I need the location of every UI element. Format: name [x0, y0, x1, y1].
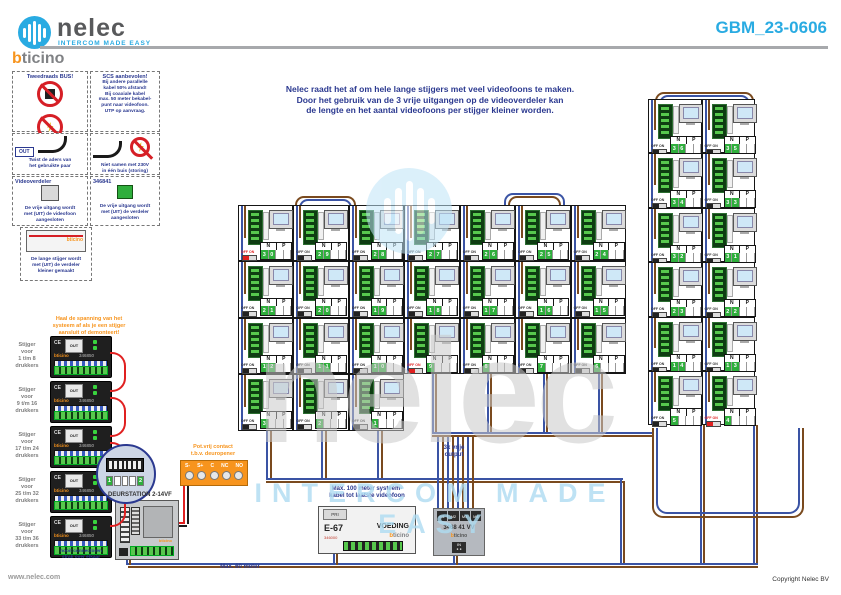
screen-stand — [686, 341, 695, 343]
screen-stand — [553, 342, 562, 344]
bus-wire-brown — [244, 375, 246, 407]
bus-wire-brown — [708, 209, 710, 239]
pri-terminal: PRI — [323, 509, 347, 520]
video-screen — [324, 323, 348, 342]
videofoon-unit-19: OFF ONNP19 — [349, 261, 404, 317]
psu-terminals — [343, 541, 403, 551]
termination-dip-switch: OFF ON — [651, 416, 669, 426]
termination-dip-switch: OFF ON — [352, 419, 370, 429]
n-value: 1 — [372, 419, 380, 428]
termination-dip-switch: OFF ON — [518, 306, 536, 316]
p-value — [747, 144, 755, 153]
address-table: NP16 — [537, 298, 569, 316]
screen-stand — [498, 229, 507, 231]
n-value: 1 — [671, 362, 679, 371]
videofoon-unit-17: OFF ONNP17 — [460, 261, 515, 317]
address-table: NP15 — [593, 298, 625, 316]
videofoon-unit-13: OFF ONNP13 — [702, 317, 756, 371]
video-screen — [324, 266, 348, 285]
video-screen — [733, 322, 757, 341]
videofoon-unit-35: OFF ONNP35 — [702, 99, 756, 153]
green-terminals — [54, 366, 108, 375]
bticino-tag: bticino — [434, 533, 484, 539]
terminal-block — [712, 158, 727, 193]
video-screen — [380, 210, 404, 229]
wire — [598, 374, 600, 434]
termination-dip-switch: OFF ON — [463, 250, 481, 260]
termination-dip-switch: OFF ON — [518, 250, 536, 260]
p-value — [747, 416, 755, 425]
address-table: NP27 — [426, 242, 458, 260]
address-table: NP31 — [724, 245, 756, 263]
address-table: NP19 — [371, 298, 403, 316]
riser-model: 346850 — [79, 533, 94, 538]
p-value — [394, 250, 402, 259]
screen-stand — [276, 342, 285, 344]
videofoon-unit-25: OFF ONNP25 — [515, 205, 570, 261]
p-value — [694, 416, 702, 425]
videofoon-unit-34: OFF ONNP34 — [648, 153, 702, 207]
screen-stand — [740, 341, 749, 343]
in-port: IN — [452, 542, 466, 553]
screen-stand — [553, 229, 562, 231]
terminal-block — [248, 379, 263, 414]
terminal-block — [525, 210, 540, 245]
wire — [266, 430, 268, 478]
bus-wire-brown — [410, 262, 412, 294]
green-connector-icon — [117, 185, 133, 199]
wire — [377, 430, 379, 478]
address-table: NP3 — [260, 411, 292, 429]
address-table: NP35 — [724, 136, 756, 154]
wire — [490, 374, 492, 434]
bus-wire-brown — [708, 263, 710, 293]
bus-wire-brown — [521, 206, 523, 238]
video-screen — [679, 267, 703, 286]
address-table: NP20 — [315, 298, 347, 316]
videofoon-unit-23: OFF ONNP23 — [648, 262, 702, 316]
address-table: NP9 — [426, 355, 458, 373]
screen-stand — [686, 177, 695, 179]
videofoon-unit-11: OFF ONNP11 — [293, 318, 348, 374]
n-value: 3 — [725, 144, 733, 153]
wire — [266, 478, 623, 480]
bus-wire-brown — [410, 206, 412, 238]
p-value — [442, 306, 450, 315]
videofoon-unit-9: OFF ONNP9 — [404, 318, 459, 374]
n-value — [679, 416, 687, 425]
n-value: 1 — [316, 363, 324, 372]
screen-stand — [498, 342, 507, 344]
distributor-icon — [41, 185, 59, 201]
p-value — [686, 416, 694, 425]
p-value — [694, 198, 702, 207]
screen-stand — [276, 285, 285, 287]
video-screen — [435, 323, 459, 342]
n-value: 6 — [546, 306, 554, 315]
n-value: 5 — [732, 144, 740, 153]
bus-wire-brown — [355, 206, 357, 238]
bticino-tag: bticino — [54, 353, 69, 358]
p-value — [686, 307, 694, 316]
terminal-block — [712, 213, 727, 248]
videofoon-unit-1: OFF ONNP1 — [349, 374, 404, 430]
wire — [381, 430, 383, 478]
terminal-block — [470, 323, 485, 358]
terminal-block — [414, 210, 429, 245]
note-box-twist: OUT Twist de aders van het gebruikte paa… — [12, 133, 88, 175]
p-value — [609, 250, 617, 259]
n-value: 4 — [725, 416, 733, 425]
address-table: NP2 — [315, 411, 347, 429]
videofoon-unit-29: OFF ONNP29 — [293, 205, 348, 261]
terminal-block — [470, 210, 485, 245]
screen-stand — [740, 177, 749, 179]
free-output-caption: 3x vrije output — [424, 445, 484, 459]
wire — [321, 430, 323, 478]
termination-dip-switch: OFF ON — [407, 306, 425, 316]
p-value — [339, 363, 347, 372]
videofoon-unit-26: OFF ONNP26 — [460, 205, 515, 261]
p-value — [276, 250, 284, 259]
bus-wire-brown — [355, 319, 357, 351]
screen-stand — [740, 123, 749, 125]
video-screen — [491, 323, 515, 342]
p-value — [387, 419, 395, 428]
address-table: NP28 — [371, 242, 403, 260]
p-value — [498, 250, 506, 259]
p-value — [609, 363, 617, 372]
termination-dip-switch: OFF ON — [241, 306, 259, 316]
header-rule — [40, 46, 828, 49]
n-value — [732, 416, 740, 425]
terminal-block — [712, 104, 727, 139]
address-table: NP8 — [482, 355, 514, 373]
p-value — [616, 250, 624, 259]
videofoon-unit-21: OFF ONNP21 — [238, 261, 293, 317]
videofoon-unit-27: OFF ONNP27 — [404, 205, 459, 261]
n-value: 3 — [725, 253, 733, 262]
p-value — [387, 363, 395, 372]
termination-dip-switch: OFF ON — [352, 363, 370, 373]
n-value: 2 — [269, 363, 277, 372]
terminal-block — [359, 379, 374, 414]
termination-dip-switch: OFF ON — [518, 363, 536, 373]
n-value: 4 — [601, 250, 609, 259]
p-value — [498, 363, 506, 372]
screen-stand — [553, 285, 562, 287]
bus-wire-brown — [299, 319, 301, 351]
videofoon-unit-2: OFF ONNP2 — [293, 374, 348, 430]
power-supply: PRI E-67 VOEDING 346000 bticino — [318, 506, 416, 554]
wire — [432, 432, 654, 434]
screen-stand — [442, 342, 451, 344]
psu-label: VOEDING — [377, 523, 409, 530]
n-value: 2 — [427, 250, 435, 259]
dip-values: 12 — [106, 476, 144, 486]
video-screen — [324, 210, 348, 229]
video-screen — [380, 379, 404, 398]
bus-wire-brown — [654, 100, 656, 130]
termination-dip-switch: OFF ON — [241, 419, 259, 429]
note-text: De lange stijger wordt met (UIT) de verd… — [23, 257, 89, 274]
terminal-block — [470, 266, 485, 301]
video-screen — [679, 376, 703, 395]
out-chip: OUT — [15, 147, 34, 157]
terminal-block — [248, 323, 263, 358]
wire — [187, 486, 189, 524]
address-table: NP21 — [260, 298, 292, 316]
n-value: 1 — [261, 363, 269, 372]
videofoon-unit-15: OFF ONNP15 — [571, 261, 626, 317]
terminal-block — [658, 104, 673, 139]
p-value — [694, 362, 702, 371]
n-value: 1 — [372, 363, 380, 372]
address-table: NP14 — [670, 354, 702, 372]
bus-wire-brown — [466, 206, 468, 238]
wire — [487, 374, 489, 434]
terminal-block — [658, 213, 673, 248]
p-value — [553, 363, 561, 372]
n-value: 3 — [732, 362, 740, 371]
wire — [543, 374, 545, 434]
video-screen — [269, 323, 293, 342]
terminal-block — [712, 322, 727, 357]
bus-wire-brown — [708, 154, 710, 184]
p-value — [387, 250, 395, 259]
bus-wire-brown — [299, 262, 301, 294]
screen-stand — [387, 342, 396, 344]
n-value: 2 — [261, 306, 269, 315]
n-value: 8 — [483, 363, 491, 372]
n-value — [546, 363, 554, 372]
address-table: NP32 — [670, 245, 702, 263]
bticino-tag: bticino — [54, 533, 69, 538]
p-value — [339, 306, 347, 315]
screen-stand — [686, 123, 695, 125]
wire — [546, 374, 548, 434]
riser-interface-device: CEOUTbticino346850 — [50, 381, 112, 423]
p-value — [442, 250, 450, 259]
n-value: 1 — [538, 306, 546, 315]
video-distributor: M1M2M3M4 3468 41 VV bticino IN — [433, 508, 485, 556]
n-value: 0 — [324, 306, 332, 315]
distributor-ports: M1M2M3M4 — [437, 511, 481, 521]
bus-wire-brown — [299, 375, 301, 407]
terminal-strip — [131, 507, 140, 535]
termination-dip-switch: OFF ON — [296, 363, 314, 373]
n-value: 9 — [427, 363, 435, 372]
bus-wire-brown — [708, 100, 710, 130]
n-value: 7 — [435, 250, 443, 259]
p-value — [694, 253, 702, 262]
p-value — [276, 419, 284, 428]
address-table: NP13 — [724, 354, 756, 372]
bus-wire-brown — [521, 262, 523, 294]
note-box-bus: Tweedraads BUS! Bij een aderpaar altijd … — [12, 71, 88, 132]
termination-dip-switch: OFF ON — [463, 306, 481, 316]
terminal-block — [581, 210, 596, 245]
videofoon-unit-20: OFF ONNP20 — [293, 261, 348, 317]
termination-dip-switch: OFF ON — [574, 363, 592, 373]
n-value: 3 — [671, 253, 679, 262]
bus-wire-brown — [244, 262, 246, 294]
contact-box-title: Pot.vrij contact t.b.v. deuropener — [168, 444, 258, 457]
p-value — [686, 198, 694, 207]
n-value: 0 — [269, 250, 277, 259]
note-text: De vrije uitgang wordt met (UIT) de vide… — [15, 206, 85, 223]
address-table: NP12 — [260, 355, 292, 373]
videofoon-unit-8: OFF ONNP8 — [460, 318, 515, 374]
video-screen — [602, 266, 626, 285]
n-value: 3 — [732, 198, 740, 207]
videofoon-unit-22: OFF ONNP22 — [702, 262, 756, 316]
n-value: 3 — [671, 198, 679, 207]
p-value — [276, 306, 284, 315]
bus-wire-brown — [299, 206, 301, 238]
p-value — [740, 416, 748, 425]
p-value — [498, 306, 506, 315]
p-value — [284, 419, 292, 428]
n-value: 2 — [372, 250, 380, 259]
bus-wire-brown — [577, 319, 579, 351]
video-screen — [269, 379, 293, 398]
bus-wire-brown — [654, 263, 656, 293]
n-value: 6 — [490, 250, 498, 259]
n-value: 4 — [679, 362, 687, 371]
termination-dip-switch: OFF ON — [352, 306, 370, 316]
n-value: 2 — [483, 250, 491, 259]
terminal-block — [359, 210, 374, 245]
n-value — [601, 363, 609, 372]
screen-stand — [387, 229, 396, 231]
note-box-connector: 346841 De vrije uitgang wordt met (UIT) … — [90, 176, 160, 226]
p-value — [284, 363, 292, 372]
psu-code: 346000 — [324, 535, 337, 540]
p-value — [740, 144, 748, 153]
address-table: NP10 — [371, 355, 403, 373]
note-text: Bij andere parallelle kabel 50% afstand!… — [93, 80, 157, 115]
termination-dip-switch: OFF ON — [241, 363, 259, 373]
wire-loop — [656, 428, 800, 514]
p-value — [394, 419, 402, 428]
bus-wire-brown — [654, 154, 656, 184]
address-table: NP25 — [537, 242, 569, 260]
videofoon-unit-24: OFF ONNP24 — [571, 205, 626, 261]
max100-caption: Max. 100 meter systeem- kabel tot laatst… — [312, 486, 422, 500]
screen-stand — [686, 286, 695, 288]
wire — [435, 374, 437, 434]
p-value — [331, 306, 339, 315]
p-value — [686, 253, 694, 262]
videofoon-unit-6: OFF ONNP6 — [571, 318, 626, 374]
n-value: 5 — [671, 416, 679, 425]
brand-name: nelec — [57, 14, 126, 43]
n-value: 9 — [379, 306, 387, 315]
riser-model: 346850 — [79, 353, 94, 358]
p-value — [505, 250, 513, 259]
video-screen — [733, 104, 757, 123]
cable-icon — [93, 141, 122, 158]
address-table: NP33 — [724, 190, 756, 208]
terminal-block — [658, 376, 673, 411]
p-value — [331, 419, 339, 428]
n-value: 5 — [546, 250, 554, 259]
screen-stand — [740, 232, 749, 234]
n-value — [379, 419, 387, 428]
videofoon-unit-18: OFF ONNP18 — [404, 261, 459, 317]
address-table: NP36 — [670, 136, 702, 154]
note-box-scs: SCS aanbevolen! Bij andere parallelle ka… — [90, 71, 160, 132]
p-value — [339, 250, 347, 259]
terminal-block — [658, 322, 673, 357]
p-value — [747, 362, 755, 371]
bus-wire-brown — [654, 372, 656, 402]
videofoon-unit-36: OFF ONNP36 — [648, 99, 702, 153]
n-value: 9 — [324, 250, 332, 259]
n-value: 2 — [316, 306, 324, 315]
p-value — [387, 306, 395, 315]
bus-wire-brown — [654, 318, 656, 348]
bticino-tag: bticino — [54, 398, 69, 403]
p-value — [331, 250, 339, 259]
bus-wire-brown — [466, 319, 468, 351]
green-terminals — [54, 411, 108, 420]
p-value — [339, 419, 347, 428]
videofoon-unit-33: OFF ONNP33 — [702, 153, 756, 207]
p-value — [740, 307, 748, 316]
note-box-verdeler: Videoverdeler De vrije uitgang wordt met… — [12, 176, 88, 226]
wire — [432, 435, 654, 437]
intro-note: Nelec raadt het af om hele lange stijger… — [215, 84, 645, 116]
screen-stand — [609, 285, 618, 287]
cable-icon — [38, 136, 67, 153]
p-value — [505, 306, 513, 315]
n-value: 3 — [671, 144, 679, 153]
p-value — [450, 250, 458, 259]
n-value: 2 — [725, 307, 733, 316]
n-value: 8 — [435, 306, 443, 315]
terminal-block — [581, 323, 596, 358]
n-value: 7 — [490, 306, 498, 315]
website-link[interactable]: www.nelec.com — [8, 574, 60, 581]
terminal-block — [359, 323, 374, 358]
video-screen — [546, 210, 570, 229]
p-value — [276, 363, 284, 372]
terminal-block — [303, 210, 318, 245]
videofoon-unit-32: OFF ONNP32 — [648, 208, 702, 262]
screen-stand — [686, 395, 695, 397]
videofoon-unit-14: OFF ONNP14 — [648, 317, 702, 371]
address-table: NP1 — [371, 411, 403, 429]
p-value — [747, 253, 755, 262]
video-screen — [269, 210, 293, 229]
screen-stand — [609, 229, 618, 231]
distributor-model: 3468 41 VV — [434, 525, 484, 531]
terminal-block — [303, 379, 318, 414]
wire-loop — [110, 352, 126, 392]
button-panel — [143, 506, 173, 538]
videofoon-unit-12: OFF ONNP12 — [238, 318, 293, 374]
video-screen — [733, 267, 757, 286]
note-box-230v: Niet samen met 230V in één buis (storing… — [90, 133, 160, 175]
address-table: NP23 — [670, 299, 702, 317]
p-value — [747, 198, 755, 207]
p-value — [442, 363, 450, 372]
terminal-block — [581, 266, 596, 301]
address-table: NP34 — [670, 190, 702, 208]
n-value: 2 — [679, 253, 687, 262]
